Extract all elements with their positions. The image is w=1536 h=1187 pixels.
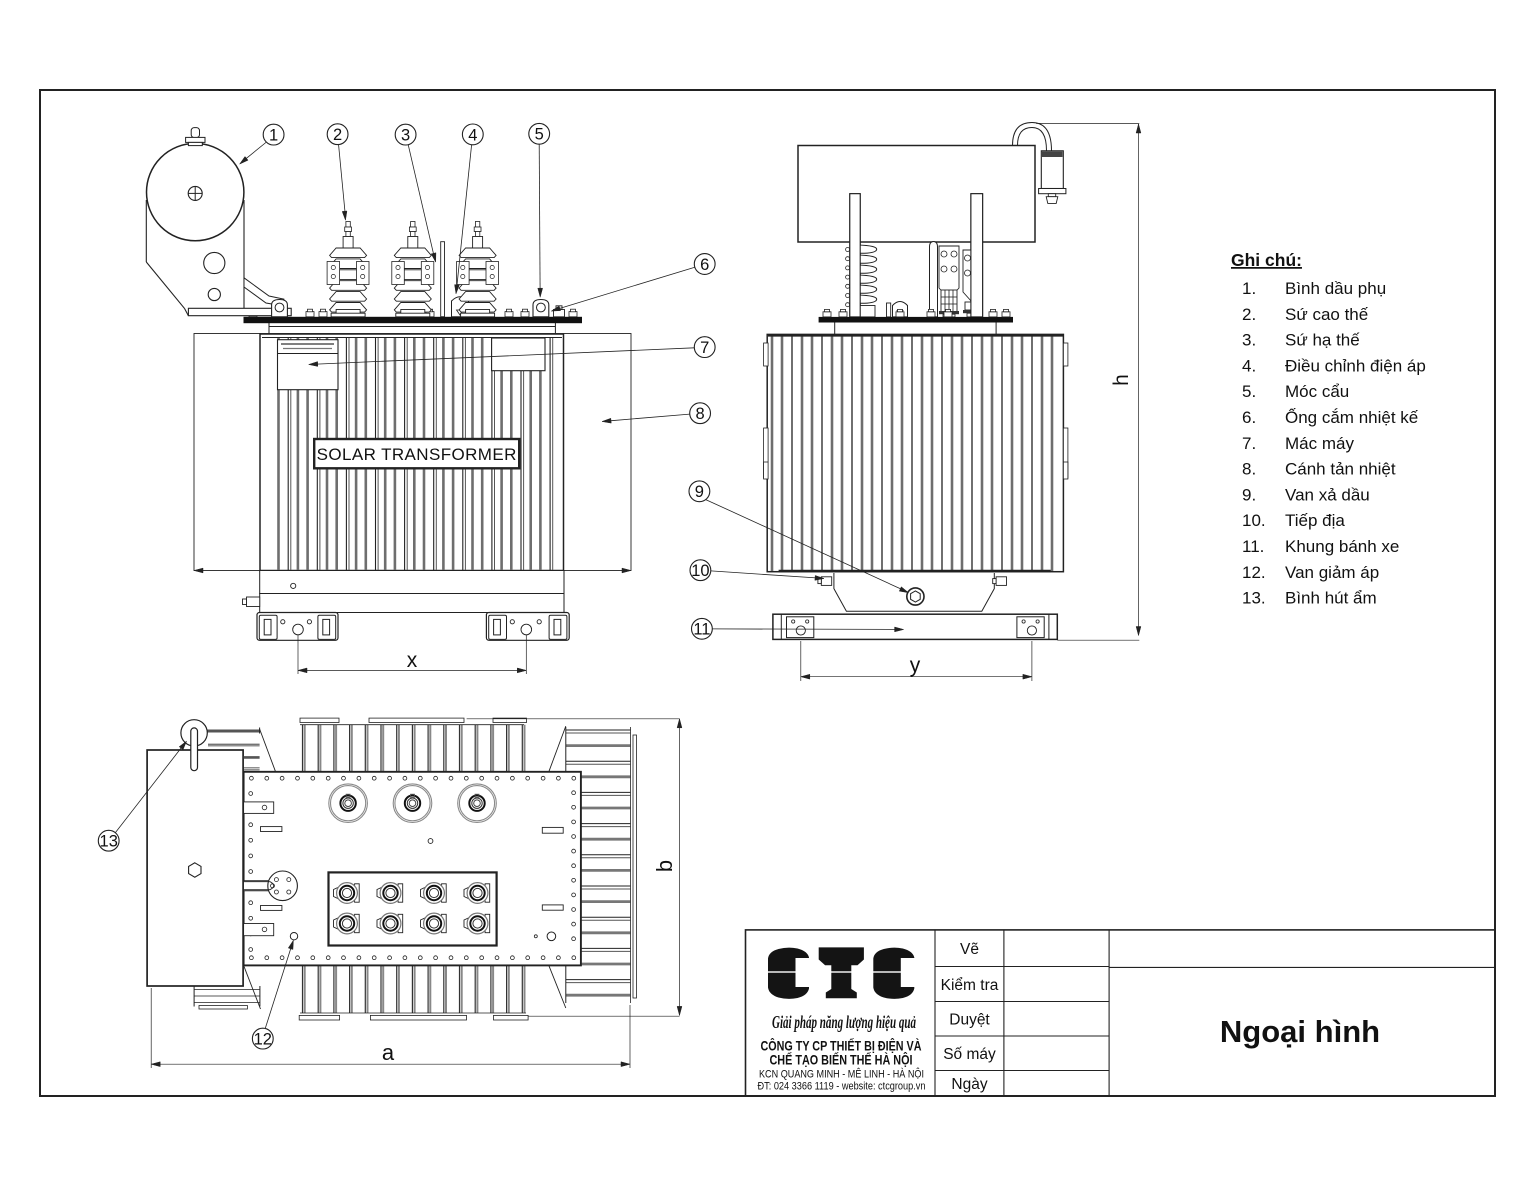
svg-text:CÔNG TY CP THIẾT BỊ ĐIỆN VÀ: CÔNG TY CP THIẾT BỊ ĐIỆN VÀ: [761, 1039, 922, 1054]
svg-text:ĐT: 024 3366 1119 - website: c: ĐT: 024 3366 1119 - website: ctcgroup.vn: [758, 1081, 926, 1093]
svg-text:a: a: [382, 1040, 395, 1065]
svg-text:2: 2: [333, 126, 342, 144]
svg-text:Khung bánh xe: Khung bánh xe: [1285, 537, 1399, 556]
svg-text:6.: 6.: [1242, 408, 1256, 427]
svg-text:Duyệt: Duyệt: [949, 1012, 990, 1029]
svg-text:1.: 1.: [1242, 279, 1256, 298]
svg-text:Sứ cao thế: Sứ cao thế: [1285, 305, 1369, 324]
svg-text:b: b: [652, 860, 677, 872]
svg-text:2.: 2.: [1242, 305, 1256, 324]
svg-text:12.: 12.: [1242, 563, 1266, 582]
svg-text:9: 9: [695, 483, 704, 501]
svg-text:Ống cắm nhiệt kế: Ống cắm nhiệt kế: [1285, 407, 1419, 427]
svg-text:7.: 7.: [1242, 434, 1256, 453]
svg-text:Số máy: Số máy: [943, 1046, 996, 1063]
svg-text:Ghi chú:: Ghi chú:: [1231, 250, 1302, 270]
svg-text:CHẾ TẠO BIẾN THẾ HÀ NỘI: CHẾ TẠO BIẾN THẾ HÀ NỘI: [770, 1053, 913, 1068]
svg-text:3: 3: [401, 127, 410, 145]
svg-text:Vẽ: Vẽ: [960, 941, 979, 958]
svg-text:4.: 4.: [1242, 356, 1256, 375]
svg-text:1: 1: [269, 127, 278, 145]
svg-text:10: 10: [691, 562, 709, 580]
svg-text:h: h: [1110, 374, 1133, 386]
svg-text:Ngoại hình: Ngoại hình: [1220, 1014, 1380, 1049]
svg-text:Mác máy: Mác máy: [1285, 434, 1354, 453]
svg-text:Bình dầu phụ: Bình dầu phụ: [1285, 279, 1386, 298]
svg-text:x: x: [407, 649, 418, 672]
svg-text:5.: 5.: [1242, 382, 1256, 401]
svg-text:10.: 10.: [1242, 511, 1266, 530]
svg-text:11: 11: [693, 621, 710, 639]
svg-text:Điều chỉnh điện áp: Điều chỉnh điện áp: [1285, 356, 1426, 375]
svg-text:3.: 3.: [1242, 331, 1256, 350]
svg-text:Van xả dầu: Van xả dầu: [1285, 485, 1370, 504]
svg-text:Van giảm áp: Van giảm áp: [1285, 563, 1379, 582]
svg-text:7: 7: [700, 339, 709, 357]
svg-text:11.: 11.: [1242, 537, 1264, 556]
svg-text:y: y: [910, 654, 921, 677]
svg-text:5: 5: [535, 126, 544, 144]
svg-text:Kiểm tra: Kiểm tra: [941, 977, 999, 994]
svg-text:SOLAR TRANSFORMER: SOLAR TRANSFORMER: [317, 445, 517, 464]
svg-text:Tiếp địa: Tiếp địa: [1285, 511, 1345, 530]
svg-text:Móc cẩu: Móc cẩu: [1285, 382, 1349, 401]
svg-text:Giải pháp năng lượng hiệu quả: Giải pháp năng lượng hiệu quả: [772, 1012, 916, 1032]
svg-text:6: 6: [700, 256, 709, 274]
svg-text:9.: 9.: [1242, 485, 1256, 504]
svg-text:8: 8: [696, 405, 705, 423]
svg-text:Ngày: Ngày: [951, 1076, 987, 1093]
svg-text:13: 13: [100, 833, 118, 851]
svg-text:Bình hút ẩm: Bình hút ẩm: [1285, 589, 1377, 608]
svg-text:4: 4: [468, 126, 477, 144]
svg-text:13.: 13.: [1242, 589, 1266, 608]
svg-text:KCN QUANG MINH - MÊ LINH - HÀ: KCN QUANG MINH - MÊ LINH - HÀ NỘI: [759, 1068, 924, 1081]
svg-text:12: 12: [254, 1031, 272, 1049]
svg-text:8.: 8.: [1242, 460, 1256, 479]
svg-text:Sứ hạ thế: Sứ hạ thế: [1285, 331, 1360, 350]
svg-text:Cánh tản nhiệt: Cánh tản nhiệt: [1285, 460, 1396, 479]
